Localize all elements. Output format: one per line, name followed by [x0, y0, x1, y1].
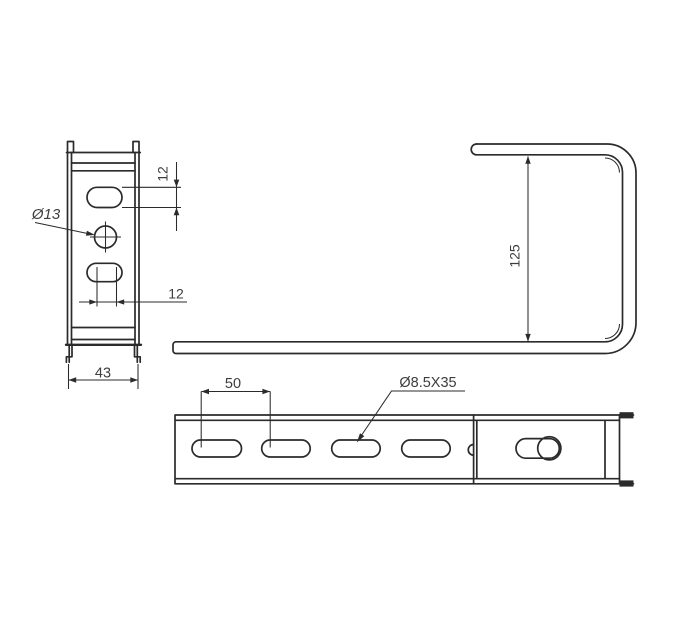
top-right-cap-bottom — [620, 480, 634, 486]
front-top-lip-tabs — [68, 142, 140, 153]
front-dim-width-arrow-right — [130, 377, 138, 382]
top-slot-2 — [262, 440, 311, 457]
top-slot-1 — [192, 440, 242, 457]
side-outer-contour — [173, 144, 636, 354]
front-slot-top — [87, 187, 122, 207]
front-hole-dia-label: Ø13 — [31, 206, 61, 223]
front-dim-slot-height-arrow-bottom — [174, 208, 180, 216]
drawing-canvas: 12 Ø13 12 43 125 — [0, 0, 680, 630]
front-side-walls — [68, 153, 140, 346]
side-dim-height-label: 125 — [507, 244, 523, 268]
side-view: 125 — [173, 144, 636, 354]
top-edges — [175, 415, 634, 484]
side-bend-ticks — [605, 158, 620, 339]
front-dim-slot-height-arrow-top — [174, 180, 180, 188]
front-dim-slot-width-label: 12 — [168, 286, 184, 302]
side-dim-height-arrow-bottom — [525, 334, 530, 342]
front-dim-slot-width-arrow-right — [117, 299, 125, 304]
top-slot-leader-arrow — [357, 433, 365, 442]
top-dim-pitch-label: 50 — [225, 376, 241, 392]
top-right-cap-top — [620, 412, 634, 418]
front-bottom-lip-legs — [66, 345, 140, 363]
front-bottom-flange — [72, 328, 136, 340]
front-hole-leader-line — [35, 223, 88, 234]
top-dim-pitch-arrow-left — [201, 389, 209, 394]
top-view: 50 Ø8.5X35 — [175, 375, 634, 487]
top-overlap-hole — [538, 437, 561, 460]
top-slot-4 — [402, 440, 451, 457]
front-view: 12 Ø13 12 43 — [31, 142, 187, 390]
front-dim-width-label: 43 — [95, 366, 111, 382]
side-inner-contour — [176, 155, 623, 342]
front-dim-slot-width-arrow-left — [89, 299, 97, 304]
top-overlap-edge — [474, 415, 477, 484]
front-dim-slot-height-lines — [122, 162, 181, 231]
top-dim-pitch-arrow-right — [262, 389, 270, 394]
technical-drawing: 12 Ø13 12 43 125 — [0, 0, 680, 630]
top-slot-size-label: Ø8.5X35 — [399, 375, 456, 391]
top-right-end-lines — [605, 415, 620, 484]
front-dim-slot-height-label: 12 — [155, 166, 171, 182]
front-top-flange — [67, 153, 141, 171]
top-slot-leader-line — [361, 391, 465, 436]
top-slot-3 — [332, 440, 381, 457]
front-hole-centerlines — [90, 222, 121, 253]
side-top-arm-end-cap — [471, 144, 476, 155]
front-dim-width-arrow-left — [69, 377, 77, 382]
front-hole-leader-arrow — [86, 231, 95, 236]
side-dim-height-arrow-top — [525, 156, 530, 164]
